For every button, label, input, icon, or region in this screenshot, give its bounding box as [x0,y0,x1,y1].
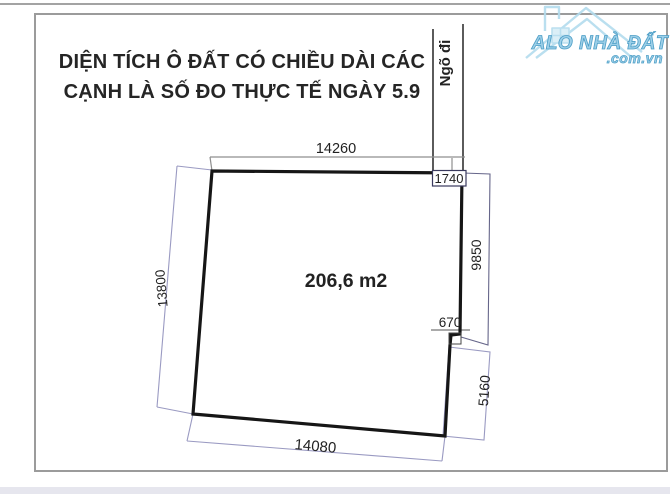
dimension-alley-width-label: 1740 [435,171,464,186]
dimension-step-label: 670 [439,315,462,330]
dimension-bottom-label: 14080 [294,436,337,457]
plot-boundary [193,171,462,436]
dimension-right-upper-label: 9850 [468,239,484,270]
dimension-right-lower-label: 5160 [475,374,493,406]
dimension-top-label: 14260 [316,141,356,157]
alley-name-label: Ngõ đi [437,40,454,87]
scanned-plot-diagram: DIỆN TÍCH Ô ĐẤT CÓ CHIỀU DÀI CÁC CẠNH LÀ… [0,0,670,494]
dimension-line-top [210,157,465,171]
area-label: 206,6 m2 [305,270,388,292]
cadastral-drawing: 14260 1740 9850 670 5160 14080 13800 206… [0,0,670,494]
